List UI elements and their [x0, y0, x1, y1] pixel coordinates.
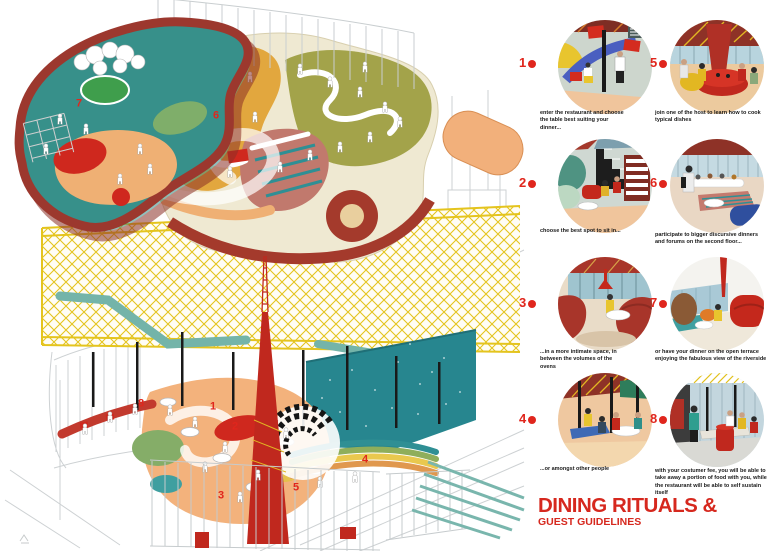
title-block: DINING RITUALS & GUEST GUIDELINES [538, 495, 717, 528]
step-3-number: 3 [519, 296, 526, 309]
step-3-caption: ...in a more intimate space, in between … [540, 349, 628, 371]
step-marker-dot [659, 60, 667, 68]
step-1-illustration [558, 20, 652, 114]
step-1-caption: enter the restaurant and choose the tabl… [540, 110, 628, 132]
step-marker-dot [528, 60, 536, 68]
axon-key-6: 6 [213, 111, 219, 122]
step-5-marker: 5 [650, 56, 667, 69]
step-2-caption: choose the best spot to sit in... [540, 228, 628, 235]
step-4-vignette [558, 373, 652, 467]
step-4-number: 4 [519, 412, 526, 425]
axon-key-3: 3 [218, 491, 224, 502]
step-2-illustration [558, 139, 652, 233]
step-1-number: 1 [519, 56, 526, 69]
axon-key-8: 8 [138, 399, 144, 410]
step-marker-dot [659, 300, 667, 308]
step-7-marker: 7 [650, 296, 667, 309]
step-4-marker: 4 [519, 412, 536, 425]
step-6-caption: participate to bigger discursive dinners… [655, 232, 767, 247]
step-1-vignette [558, 20, 652, 114]
step-7-number: 7 [650, 296, 657, 309]
axon-illustration [0, 0, 525, 551]
axon-key-5: 5 [293, 483, 299, 494]
step-marker-dot [528, 300, 536, 308]
axon-key-4: 4 [362, 455, 368, 466]
step-8-vignette [670, 373, 764, 467]
step-6-vignette [670, 139, 764, 233]
presentation-sheet: 1 2 3 4 5 6 7 8 1 [0, 0, 780, 551]
exploded-slab [435, 103, 525, 182]
step-7-caption: or have your dinner on the open terrace … [655, 349, 767, 364]
step-marker-dot [659, 180, 667, 188]
step-5-caption: join one of the host to learn how to coo… [655, 110, 767, 125]
axon-key-7: 7 [76, 99, 82, 110]
step-2-number: 2 [519, 176, 526, 189]
page-title: DINING RITUALS & [538, 495, 717, 517]
axonometric-drawing: 1 2 3 4 5 6 7 8 [0, 0, 525, 551]
step-3-vignette [558, 257, 652, 351]
step-6-marker: 6 [650, 176, 667, 189]
step-7-vignette [670, 257, 764, 351]
step-8-number: 8 [650, 412, 657, 425]
page-subtitle: GUEST GUIDELINES [538, 517, 717, 529]
axon-key-1: 1 [210, 402, 216, 413]
axon-key-2: 2 [232, 422, 238, 433]
step-2-marker: 2 [519, 176, 536, 189]
step-4-illustration [558, 373, 652, 467]
step-5-vignette [670, 20, 764, 114]
step-8-illustration [670, 373, 764, 467]
step-2-vignette [558, 139, 652, 233]
step-3-marker: 3 [519, 296, 536, 309]
step-3-illustration [558, 257, 652, 351]
step-6-number: 6 [650, 176, 657, 189]
step-marker-dot [659, 416, 667, 424]
step-1-marker: 1 [519, 56, 536, 69]
step-marker-dot [528, 180, 536, 188]
step-6-illustration [670, 139, 764, 233]
step-7-illustration [670, 257, 764, 351]
step-marker-dot [528, 416, 536, 424]
step-5-number: 5 [650, 56, 657, 69]
step-4-caption: ...or amongst other people [540, 466, 628, 473]
sheet-corner-mark [18, 532, 32, 544]
step-5-illustration [670, 20, 764, 114]
step-8-marker: 8 [650, 412, 667, 425]
